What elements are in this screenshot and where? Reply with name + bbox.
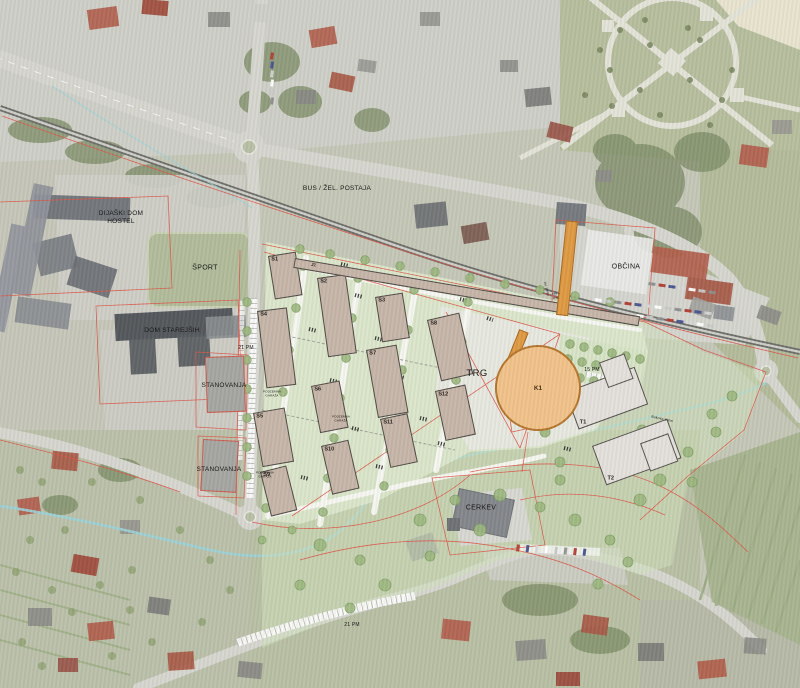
label-dom-starejsih: DOM STAREJŠIH — [144, 327, 200, 335]
map-labels-layer: BUS / ŽEL. POSTAJAOBČINADIJAŠKI DOM HOST… — [0, 0, 800, 688]
label-stanovanja-2: STANOVANJA — [197, 466, 242, 474]
label-podzemna-garaza-3: PODZEMNA GARAŽA — [256, 471, 274, 479]
label-bus-zel-postaja: BUS / ŽEL. POSTAJA — [303, 185, 371, 193]
label-trg: TRG — [466, 368, 487, 380]
label-podzemna-garaza-1: PODZEMNA GARAŽA — [263, 390, 281, 398]
label-pm15: 15 PM — [584, 367, 599, 373]
label-stanovanja-1: STANOVANJA — [202, 382, 247, 390]
label-podzemna-garaza-2: PODZEMNA GARAŽA — [332, 415, 350, 423]
label-cerkev: CERKEV — [466, 505, 496, 514]
label-pes-graj: peš + graj. — [552, 292, 560, 300]
label-sport: ŠPORT — [192, 265, 217, 274]
label-obcina: OBČINA — [612, 264, 641, 273]
label-zel-proga: žel. proga — [542, 282, 549, 297]
label-bukova-zona: Bukova zona — [651, 415, 673, 424]
label-pm21-south: 21 PM — [344, 622, 359, 628]
masterplan-map-canvas[interactable]: S1S2S3S4S5S6S7S8S9S10S11S12J1T1T2K1 BUS … — [0, 0, 800, 688]
label-pm21-west: 21 PM — [238, 345, 253, 351]
label-dijaski-dom-hostel: DIJAŠKI DOM HOSTEL — [99, 210, 143, 226]
